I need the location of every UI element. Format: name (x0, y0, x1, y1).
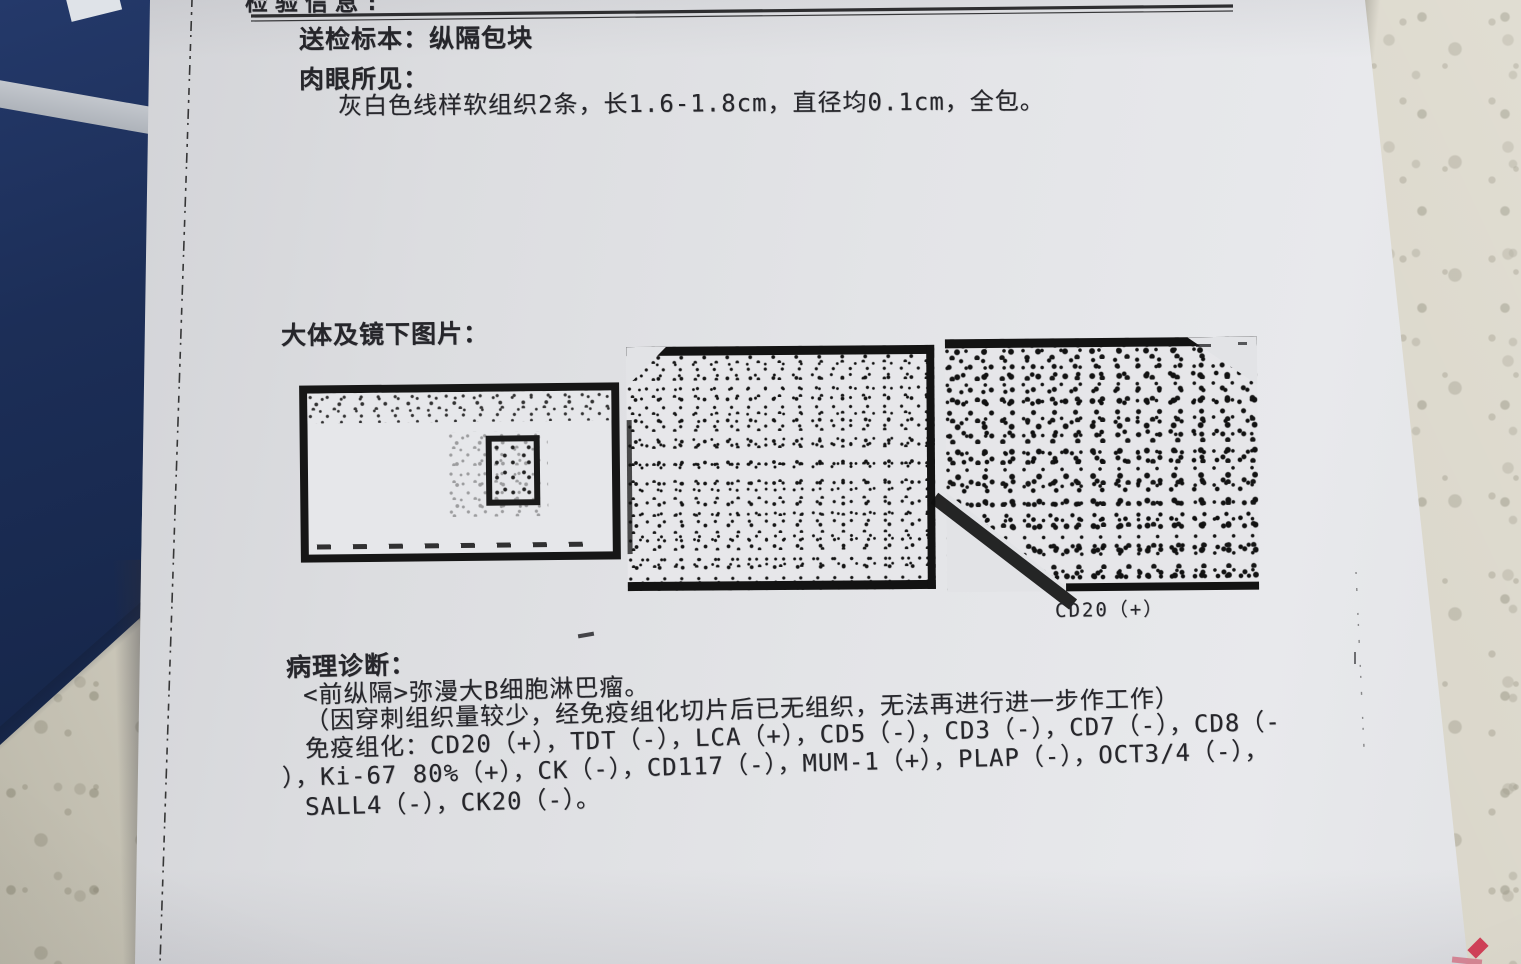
figure-border (627, 420, 633, 554)
figure-border (1066, 582, 1260, 592)
folder-label-patch (66, 0, 122, 22)
print-artifact-dash (1196, 344, 1211, 347)
specimen-container-outline (486, 435, 541, 506)
figure-caption-cd20: CD20（+） (1055, 594, 1165, 623)
images-section-heading: 大体及镜下图片： (281, 314, 489, 352)
specimen-photo-top-texture (307, 390, 611, 423)
microscopic-image-1 (626, 345, 936, 591)
specimen-line: 送检标本：纵隔包块 (299, 18, 533, 56)
figure-border (926, 345, 936, 589)
gross-findings-text: 灰白色线样软组织2条，长1.6-1.8cm，直径均0.1cm，全包。 (338, 81, 1045, 121)
gross-specimen-photo (299, 382, 621, 562)
figure-border (626, 345, 934, 356)
figure-corner-blank (946, 491, 1072, 592)
print-artifact-tick (1354, 652, 1356, 664)
print-artifact-dash (1238, 342, 1247, 345)
clipped-top-heading: 检验信息: (245, 0, 386, 17)
microscopic-image-2 (945, 337, 1259, 593)
specimen-photo-bottom-marks (317, 542, 603, 550)
photo-of-pathology-report: 检验信息: 送检标本：纵隔包块 肉眼所见： 灰白色线样软组织2条，长1.6-1.… (0, 0, 1521, 964)
